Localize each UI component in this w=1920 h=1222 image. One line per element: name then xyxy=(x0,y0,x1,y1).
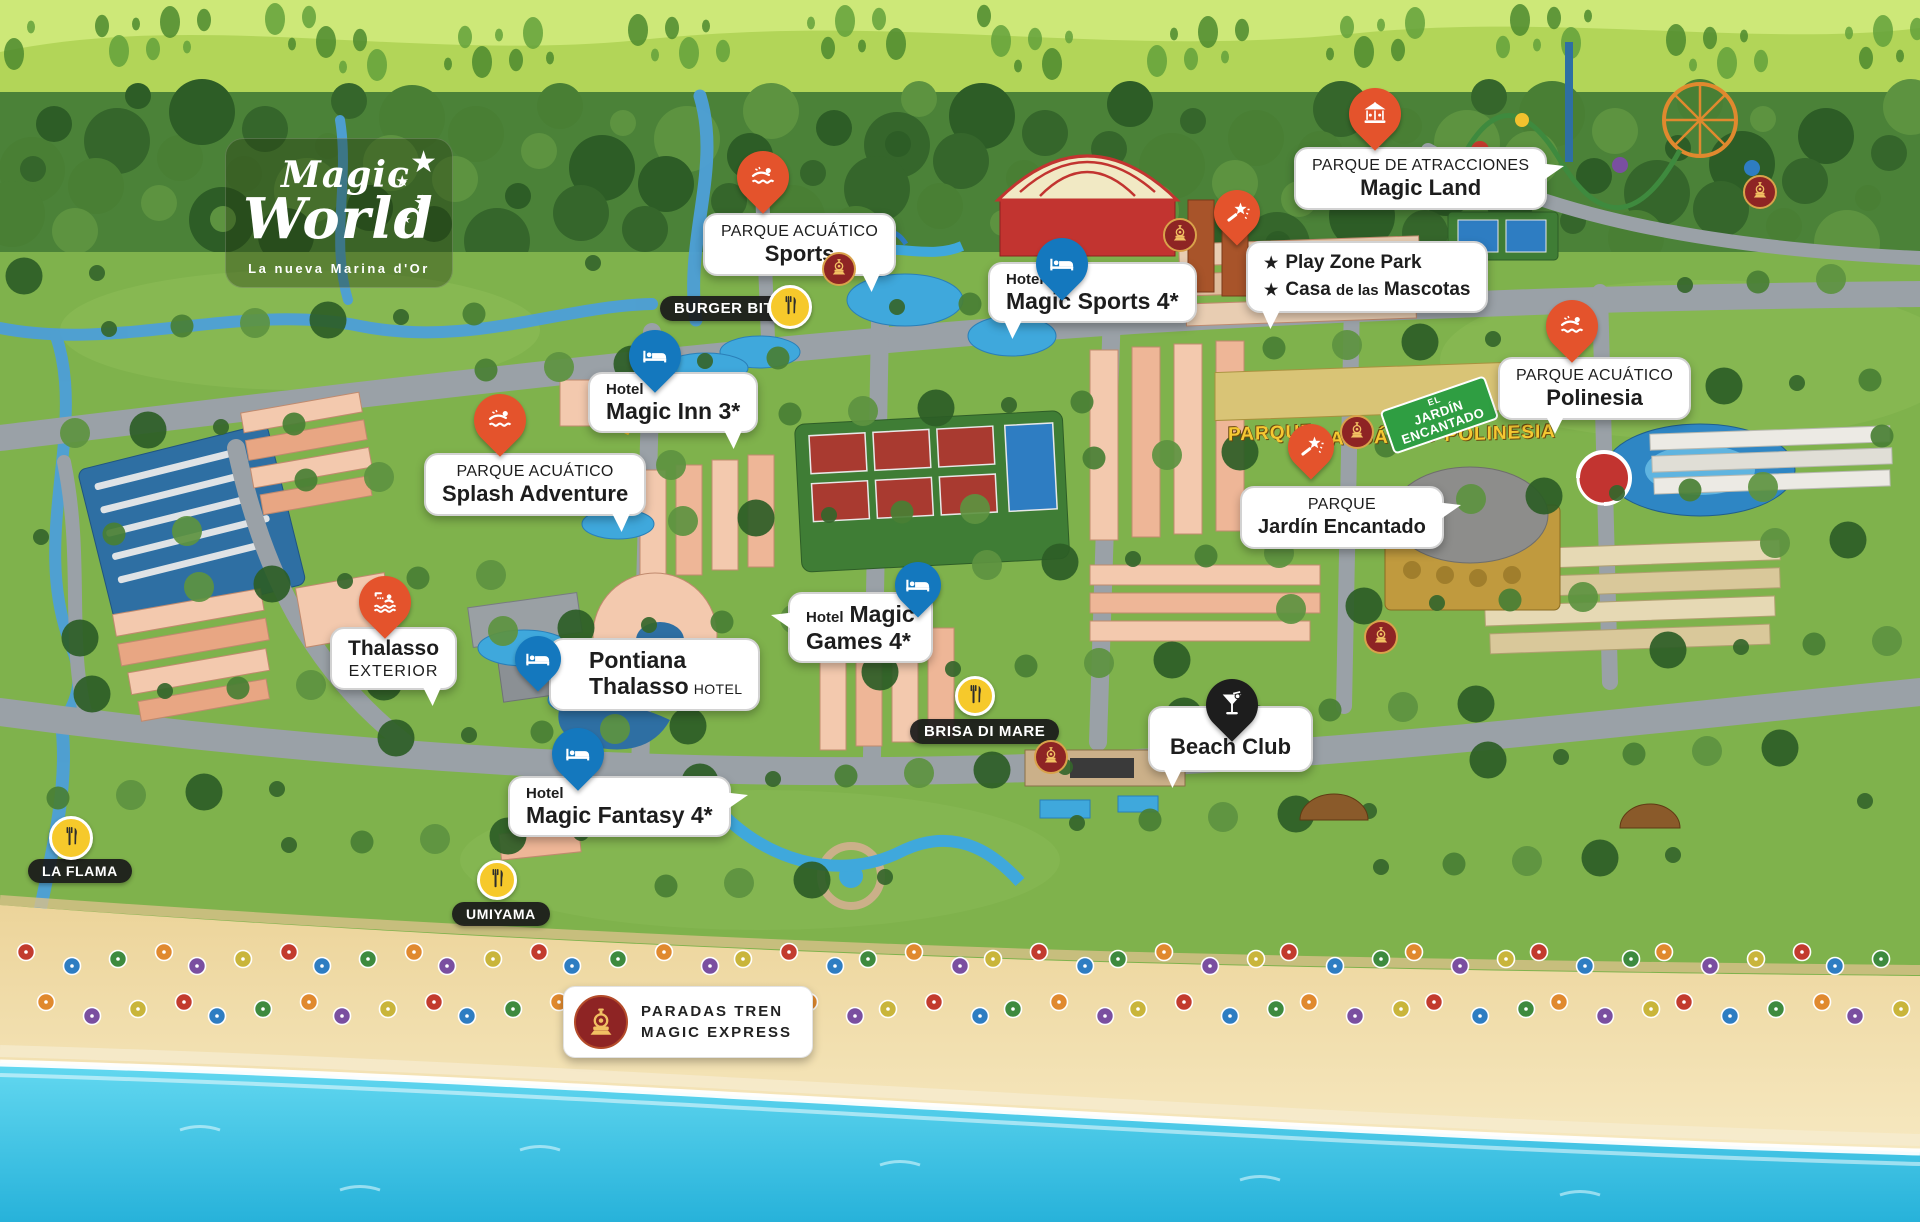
label-jardin-encantado[interactable]: PARQUE Jardín Encantado xyxy=(1240,486,1444,549)
train-stop[interactable] xyxy=(1364,620,1398,654)
sports-park-pin[interactable] xyxy=(726,140,800,214)
burger-bites-marker[interactable] xyxy=(768,285,812,329)
train-stop[interactable] xyxy=(822,252,856,286)
bubble-tail xyxy=(713,425,745,452)
train-icon xyxy=(574,995,628,1049)
label-la-flama[interactable]: LA FLAMA xyxy=(28,859,132,883)
swimmer-icon xyxy=(749,163,777,191)
label-thalasso-exterior[interactable]: Thalasso EXTERIOR xyxy=(330,627,457,690)
magic-wand-icon xyxy=(1223,199,1251,227)
bubble-tail xyxy=(768,612,797,633)
logo-subtitle: La nueva Marina d'Or xyxy=(225,261,453,276)
legend-line2: MAGIC EXPRESS xyxy=(641,1022,792,1043)
train-icon xyxy=(829,257,849,282)
label-magic-land[interactable]: PARQUE DE ATRACCIONES Magic Land xyxy=(1294,147,1547,210)
umiyama-marker[interactable] xyxy=(477,860,517,900)
bed-icon xyxy=(904,571,932,599)
bubble-tail xyxy=(1538,163,1567,184)
label-hotel-magic-sports[interactable]: Hotel Magic Sports 4* xyxy=(988,262,1197,323)
label-parque-acuatico-sports[interactable]: PARQUE ACUÁTICO Sports xyxy=(703,213,896,276)
magic-land-pin[interactable] xyxy=(1338,77,1412,151)
bubble-tail xyxy=(1544,412,1566,437)
train-icon xyxy=(1170,223,1190,248)
bubble-tail xyxy=(1162,764,1194,791)
swimmer-icon xyxy=(1558,312,1586,340)
polinesia-pin[interactable] xyxy=(1535,289,1609,363)
carousel-icon xyxy=(1361,100,1389,128)
label-parque-acuatico-polinesia[interactable]: PARQUE ACUÁTICO Polinesia xyxy=(1498,357,1691,420)
train-stop[interactable] xyxy=(1340,415,1374,449)
fork-knife-icon xyxy=(60,825,82,852)
star-icon: ★ xyxy=(1264,282,1278,299)
label-pontiana-thalasso[interactable]: Pontiana ThalassoHOTEL xyxy=(549,638,760,711)
fork-knife-icon xyxy=(486,867,508,894)
brisa-di-mare-marker[interactable] xyxy=(955,676,995,716)
train-icon xyxy=(1041,745,1061,770)
train-stop[interactable] xyxy=(1163,218,1197,252)
la-flama-marker[interactable] xyxy=(49,816,93,860)
bed-icon xyxy=(1048,250,1076,278)
label-hotel-magic-fantasy[interactable]: Hotel Magic Fantasy 4* xyxy=(508,776,731,837)
label-play-zone-park[interactable]: ★Play Zone Park ★Casa de las Mascotas xyxy=(1246,241,1488,313)
magic-wand-icon xyxy=(1297,433,1325,461)
bubble-tail xyxy=(1002,315,1034,342)
label-splash-adventure[interactable]: PARQUE ACUÁTICO Splash Adventure xyxy=(424,453,646,516)
train-icon xyxy=(1347,420,1367,445)
fork-knife-icon xyxy=(964,683,986,710)
legend-magic-express: PARADAS TREN MAGIC EXPRESS xyxy=(563,986,813,1058)
star-icon: ★ xyxy=(1264,255,1278,272)
train-icon xyxy=(1750,180,1770,205)
bed-icon xyxy=(641,342,669,370)
bubble-tail xyxy=(412,682,444,709)
legend-line1: PARADAS TREN xyxy=(641,1001,792,1022)
play-zone-pin[interactable] xyxy=(1204,180,1269,245)
label-umiyama[interactable]: UMIYAMA xyxy=(452,902,550,926)
bed-icon xyxy=(564,740,592,768)
label-brisa-di-mare[interactable]: BRISA DI MARE xyxy=(910,719,1059,744)
splash-adventure-pin[interactable] xyxy=(463,383,537,457)
resort-map: Magic World ★★ ★★ La nueva Marina d'Or P… xyxy=(0,0,1920,1222)
cocktail-icon xyxy=(1218,691,1246,719)
swimmer-icon xyxy=(486,406,514,434)
magic-world-logo: Magic World ★★ ★★ La nueva Marina d'Or xyxy=(225,138,453,288)
label-hotel-magic-inn[interactable]: Hotel Magic Inn 3* xyxy=(588,372,758,433)
train-stop[interactable] xyxy=(1034,740,1068,774)
fork-knife-icon xyxy=(779,294,801,321)
bubble-tail xyxy=(722,792,751,813)
logo-stars-icon: ★★ ★★ xyxy=(391,148,439,238)
shower-swim-icon xyxy=(371,588,399,616)
bubble-tail xyxy=(601,508,633,535)
train-icon xyxy=(1371,625,1391,650)
train-stop[interactable] xyxy=(1743,175,1777,209)
bed-icon xyxy=(524,645,552,673)
bubble-tail xyxy=(1260,305,1292,332)
bubble-tail xyxy=(1435,502,1464,523)
